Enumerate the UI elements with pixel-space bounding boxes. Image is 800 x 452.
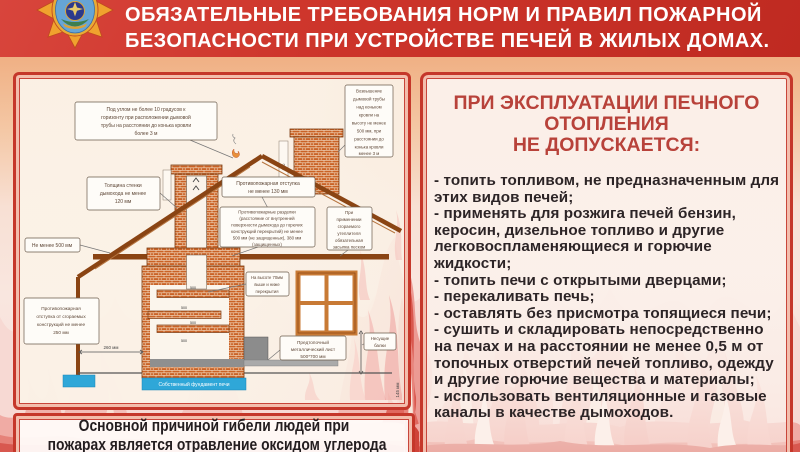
- svg-text:(защищенных): (защищенных): [252, 242, 282, 247]
- svg-text:500: 500: [181, 339, 187, 343]
- svg-text:дымохода не менее: дымохода не менее: [100, 191, 147, 197]
- svg-text:500: 500: [181, 306, 187, 310]
- svg-text:конструкций перекрытий) не мен: конструкций перекрытий) не менее: [231, 229, 303, 234]
- svg-text:Собственный фундамент печи: Собственный фундамент печи: [158, 381, 229, 388]
- svg-text:500: 500: [190, 321, 196, 325]
- svg-text:Возвышение: Возвышение: [356, 89, 383, 94]
- svg-text:дымовой трубы: дымовой трубы: [353, 97, 385, 102]
- svg-text:сгораемого: сгораемого: [338, 224, 361, 229]
- svg-text:утеплителя: утеплителя: [337, 231, 361, 236]
- svg-text:(расстояние от внутренней: (расстояние от внутренней: [239, 216, 295, 221]
- svg-text:При: При: [345, 210, 354, 215]
- svg-text:Противопожарная: Противопожарная: [41, 306, 81, 311]
- svg-text:145 мм: 145 мм: [395, 383, 400, 398]
- svg-text:Противопожарные разделки: Противопожарные разделки: [238, 210, 296, 215]
- svg-text:500*700 мм: 500*700 мм: [300, 354, 325, 359]
- svg-text:120 мм: 120 мм: [115, 199, 132, 205]
- svg-text:расстоянии до: расстоянии до: [354, 137, 384, 142]
- svg-text:500: 500: [190, 286, 196, 290]
- svg-text:менее 3 м: менее 3 м: [359, 151, 380, 156]
- svg-text:На высоте 70мм: На высоте 70мм: [251, 275, 283, 280]
- svg-text:500 мм, при: 500 мм, при: [357, 129, 382, 134]
- svg-text:кровли на: кровли на: [359, 113, 380, 118]
- svg-text:засыпка песком: засыпка песком: [333, 245, 365, 250]
- svg-text:260 мм: 260 мм: [104, 345, 119, 350]
- svg-text:применении: применении: [337, 217, 362, 222]
- svg-text:поверхности дымохода до горючи: поверхности дымохода до горючих: [231, 223, 303, 228]
- svg-text:высоту не менее: высоту не менее: [352, 121, 387, 126]
- svg-text:отступка от сгораемых: отступка от сгораемых: [36, 314, 86, 319]
- svg-text:Под углом не более 10 градусов: Под углом не более 10 градусов к: [107, 107, 187, 113]
- svg-text:перекрытия: перекрытия: [256, 289, 279, 294]
- svg-text:Толщина стенки: Толщина стенки: [104, 183, 142, 189]
- svg-text:конька кровли: конька кровли: [355, 145, 384, 150]
- svg-text:горизонту при расположении дым: горизонту при расположении дымовой: [101, 114, 191, 121]
- svg-text:трубы на расстоянии до конька: трубы на расстоянии до конька кровли: [101, 123, 192, 129]
- svg-text:не менее 130 мм: не менее 130 мм: [248, 189, 288, 195]
- svg-text:500 мм (не защищенных), 380 мм: 500 мм (не защищенных), 380 мм: [233, 236, 302, 241]
- svg-text:250 мм: 250 мм: [53, 330, 69, 335]
- svg-text:Предтопочный: Предтопочный: [297, 339, 329, 345]
- svg-text:конструкций не менее: конструкций не менее: [37, 321, 85, 327]
- svg-text:выше и ниже: выше и ниже: [254, 282, 280, 287]
- svg-text:балки: балки: [374, 343, 386, 348]
- svg-text:более 3 м: более 3 м: [134, 131, 158, 137]
- svg-text:Не менее 500 мм: Не менее 500 мм: [32, 243, 73, 249]
- svg-text:Несущие: Несущие: [371, 336, 390, 341]
- svg-text:обязательная: обязательная: [335, 238, 364, 243]
- svg-text:Противопожарная отступка: Противопожарная отступка: [236, 181, 300, 187]
- svg-text:над коньком: над коньком: [356, 105, 381, 110]
- svg-text:металлический лист: металлический лист: [291, 346, 336, 352]
